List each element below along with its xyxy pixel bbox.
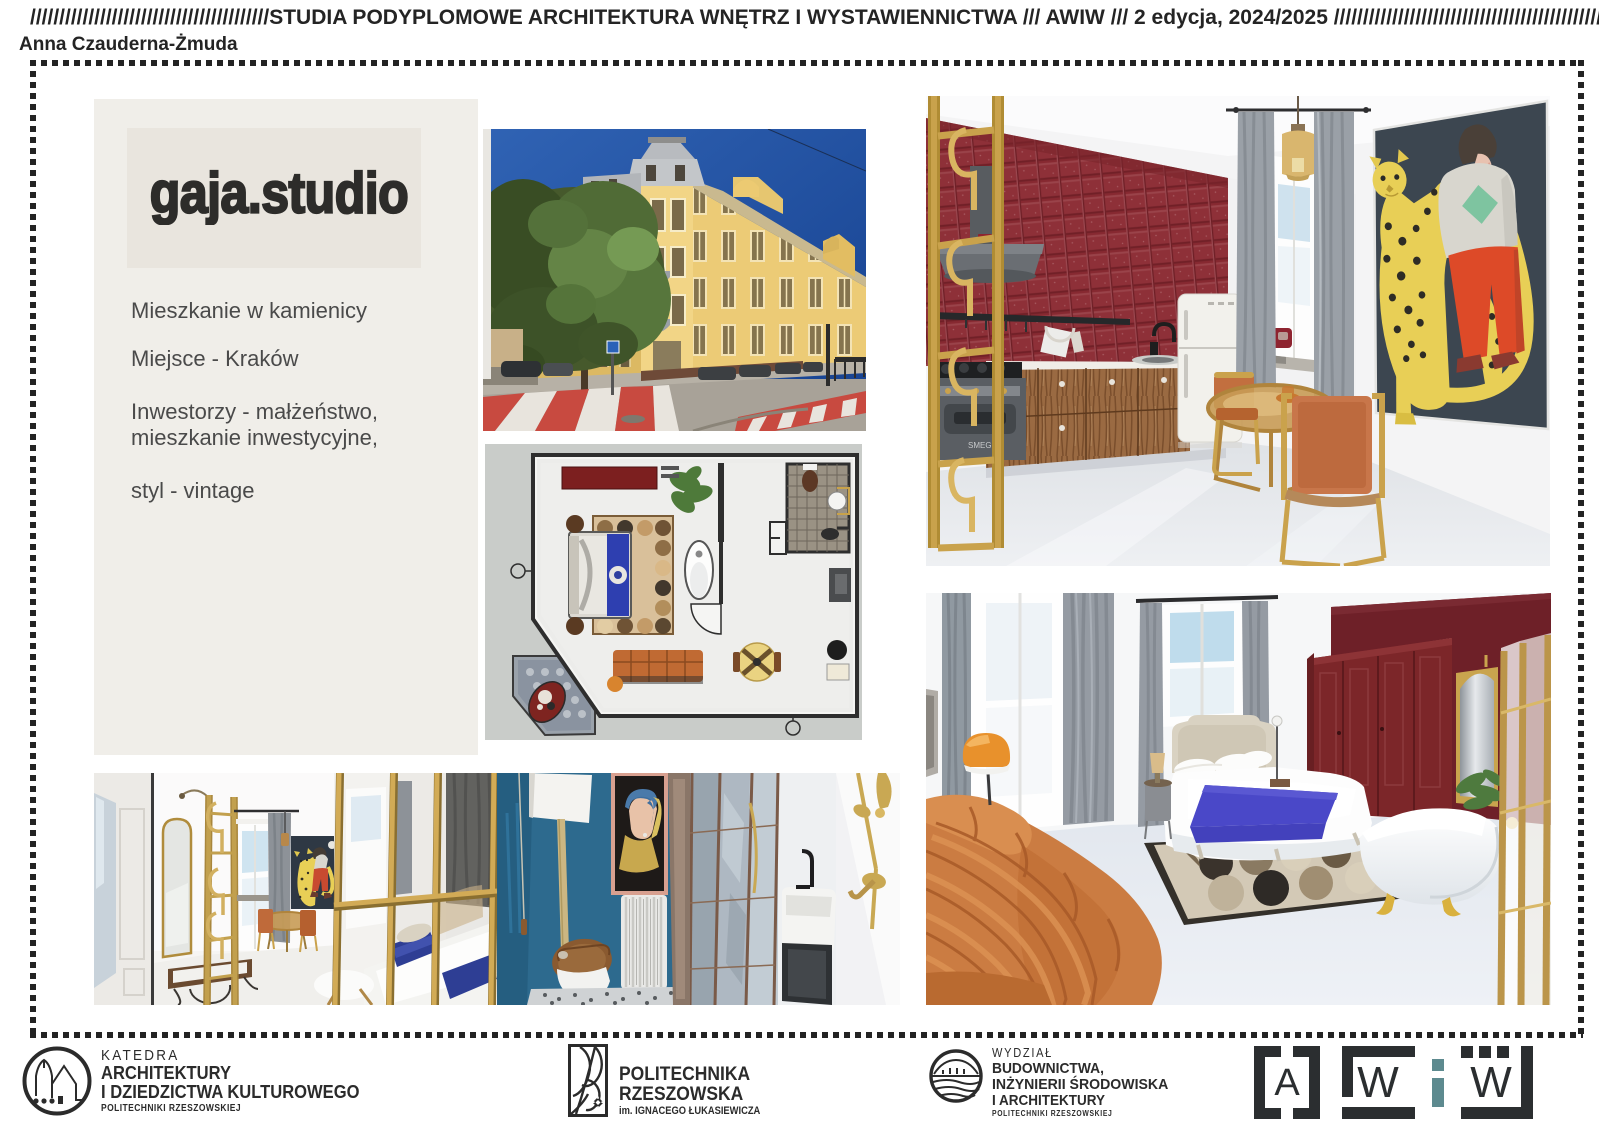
svg-text:A: A (1274, 1062, 1300, 1104)
svg-text:W: W (1357, 1058, 1399, 1107)
svg-text:SMEG: SMEG (968, 441, 992, 450)
svg-text:W: W (1470, 1058, 1512, 1107)
